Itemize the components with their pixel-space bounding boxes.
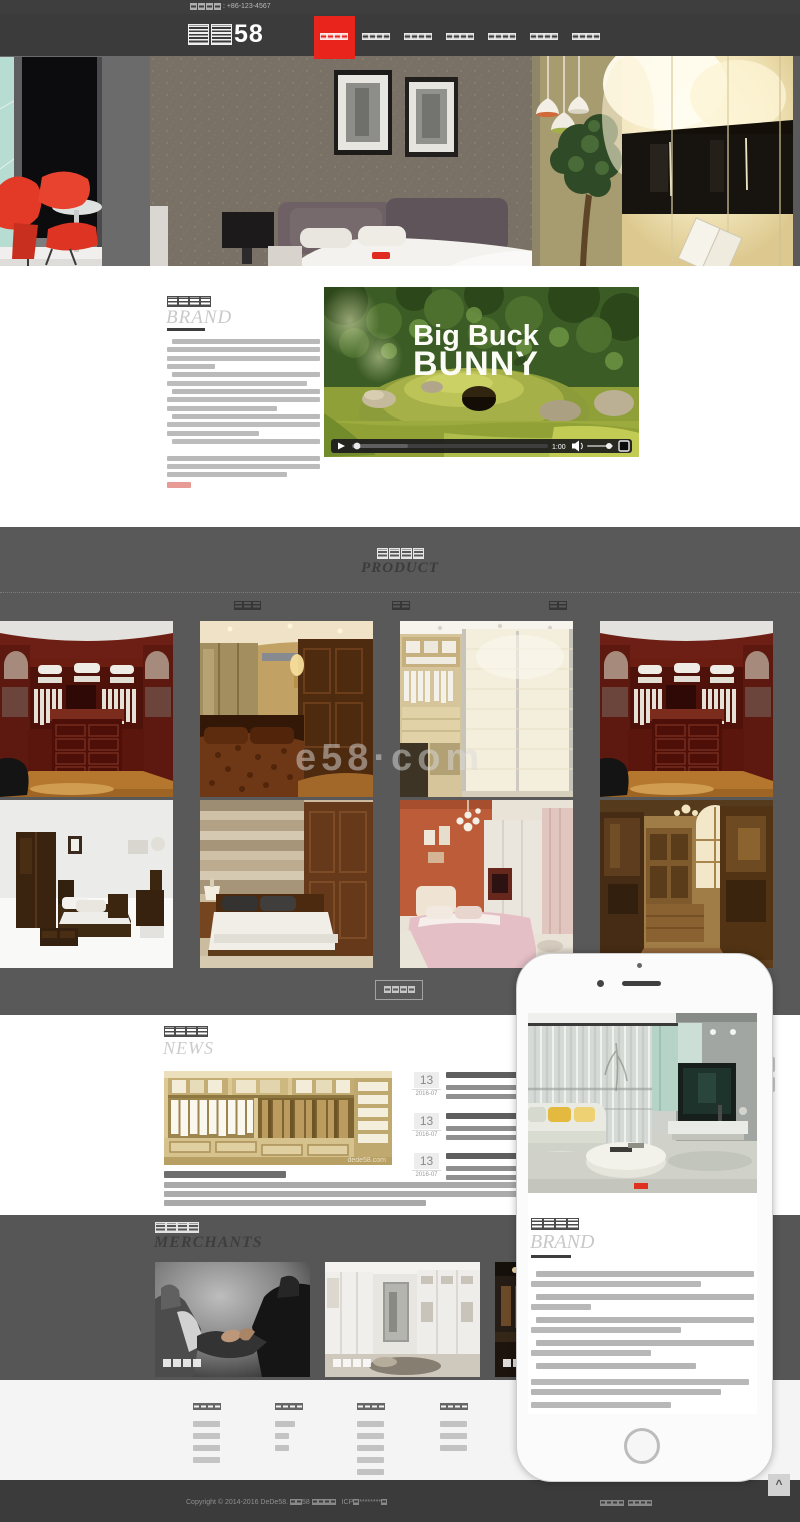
svg-text:1:00: 1:00 — [552, 444, 566, 451]
svg-text:dede58.com: dede58.com — [347, 1157, 386, 1164]
